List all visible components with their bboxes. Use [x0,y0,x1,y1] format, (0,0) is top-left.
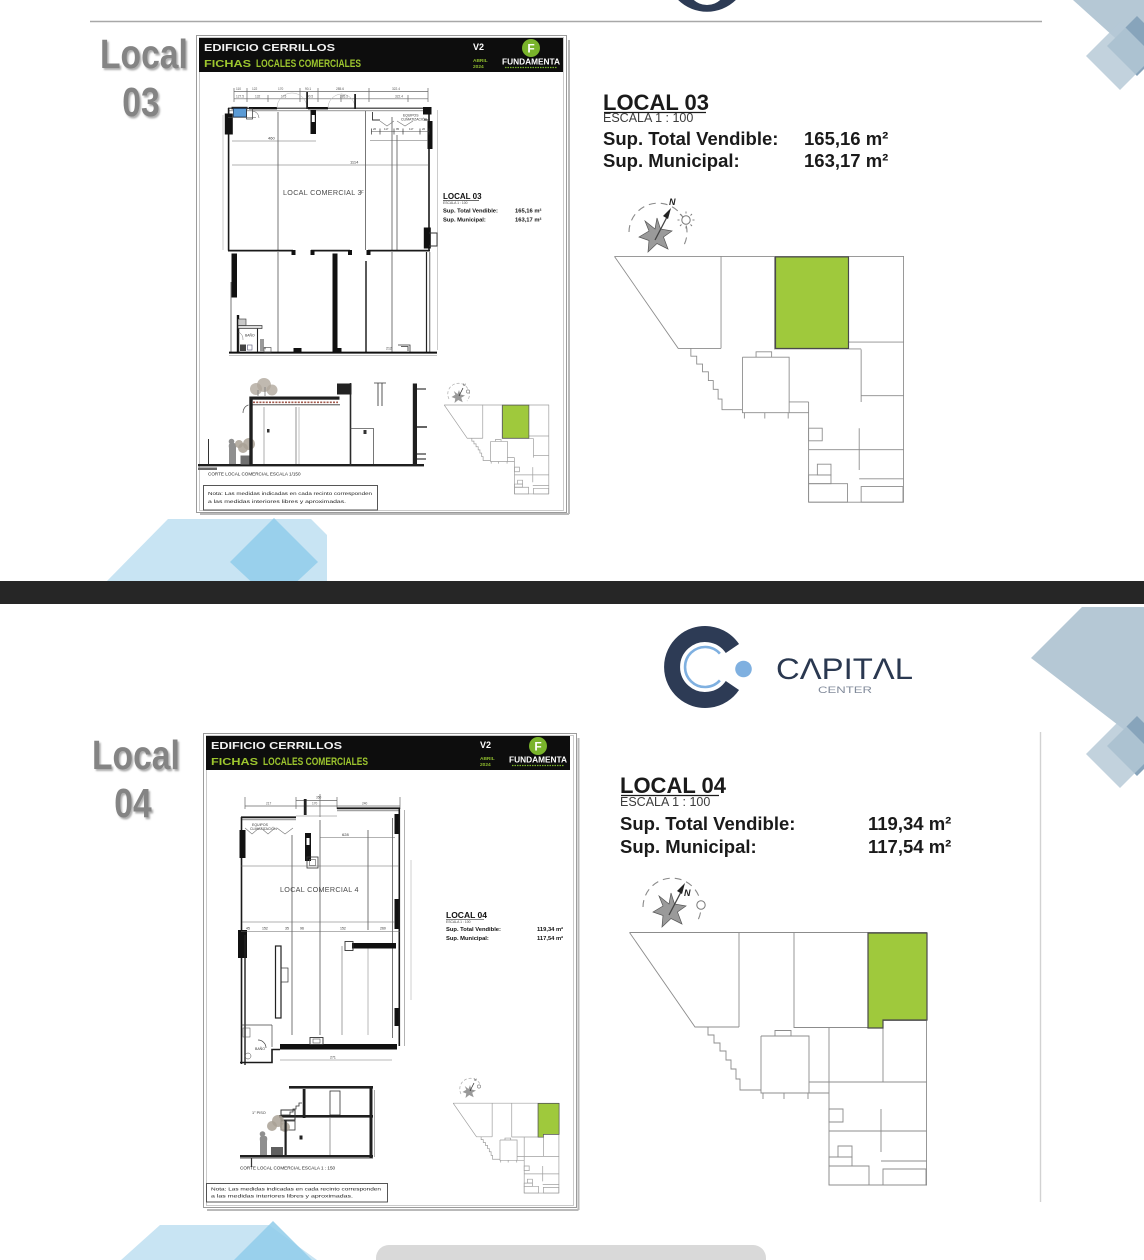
svg-text:165,16 m²: 165,16 m² [515,208,541,215]
svg-text:240: 240 [362,802,368,806]
svg-text:V2: V2 [480,740,491,750]
svg-text:Sup. Total Vendible:: Sup. Total Vendible: [620,813,795,834]
svg-text:35: 35 [285,927,289,931]
svg-text:LOCALES COMERCIALES: LOCALES COMERCIALES [256,58,361,70]
svg-text:ABRIL: ABRIL [480,756,495,762]
svg-text:322.4: 322.4 [392,87,400,91]
svg-text:163,17 m²: 163,17 m² [515,217,541,224]
svg-text:Sup. Municipal:: Sup. Municipal: [443,218,486,224]
svg-text:CENTER: CENTER [818,685,872,696]
svg-text:CORTE LOCAL COMERCIAL ESCALA 1: CORTE LOCAL COMERCIAL ESCALA 1/150 [208,472,301,477]
svg-text:90.1: 90.1 [305,87,311,91]
svg-text:152: 152 [340,927,346,931]
svg-text:LOCAL 04: LOCAL 04 [446,910,487,920]
svg-text:117,54 m²: 117,54 m² [868,836,951,857]
svg-text:FUNDAMENTA: FUNDAMENTA [502,58,560,67]
svg-text:122: 122 [252,87,258,91]
svg-text:CΛPITΛL: CΛPITΛL [776,653,913,686]
svg-text:170: 170 [278,87,284,91]
svg-text:271: 271 [330,1056,336,1060]
svg-text:a las medidas interiores libre: a las medidas interiores libres y aproxi… [208,499,346,505]
svg-text:170: 170 [312,802,318,806]
svg-text:ESCALA 1 : 100: ESCALA 1 : 100 [620,795,710,809]
svg-text:119,34 m²: 119,34 m² [537,926,563,933]
svg-text:152: 152 [262,927,268,931]
svg-text:96: 96 [300,927,304,931]
svg-text:V2: V2 [473,42,484,52]
svg-text:2024: 2024 [480,762,491,768]
svg-text:CORTE LOCAL COMERCIAL ESCALA 1: CORTE LOCAL COMERCIAL ESCALA 1 : 150 [240,1166,336,1171]
svg-text:2024: 2024 [473,64,484,70]
svg-text:BAÑO: BAÑO [255,1046,265,1051]
svg-text:127.5: 127.5 [236,95,244,99]
svg-text:ESCALA 1 : 100: ESCALA 1 : 100 [443,201,468,205]
svg-text:95: 95 [396,127,400,131]
svg-text:Nota: Las medidas indicadas en: Nota: Las medidas indicadas en cada reci… [211,1187,381,1193]
svg-text:322.4: 322.4 [395,95,403,99]
svg-text:ESCALA 1 : 100: ESCALA 1 : 100 [603,111,693,125]
svg-text:Sup. Total Vendible:: Sup. Total Vendible: [603,128,778,149]
svg-text:Sup. Total Vendible:: Sup. Total Vendible: [443,209,498,215]
svg-text:ABRIL: ABRIL [473,58,488,64]
svg-text:165,16 m²: 165,16 m² [804,128,888,149]
svg-text:260: 260 [380,927,386,931]
svg-text:EDIFICIO CERRILLOS: EDIFICIO CERRILLOS [204,43,335,54]
svg-text:a las medidas interiores libre: a las medidas interiores libres y aproxi… [211,1194,353,1200]
svg-text:Sup. Total Vendible:: Sup. Total Vendible: [446,927,501,933]
svg-text:FICHAS: FICHAS [204,59,251,70]
svg-text:175: 175 [281,95,287,99]
svg-text:1° PISO: 1° PISO [252,1111,266,1115]
svg-text:217: 217 [266,802,272,806]
svg-text:F: F [361,190,364,195]
svg-text:LOCAL COMERCIAL 4: LOCAL COMERCIAL 4 [280,885,359,894]
svg-text:Sup. Municipal:: Sup. Municipal: [620,836,757,857]
svg-text:163,17 m²: 163,17 m² [804,150,888,171]
svg-text:ESCALA 1 : 100: ESCALA 1 : 100 [446,920,471,924]
svg-text:LOCAL COMERCIAL 3: LOCAL COMERCIAL 3 [283,188,362,197]
svg-text:350: 350 [316,796,322,800]
svg-text:212: 212 [386,347,392,351]
svg-text:LOCALES COMERCIALES: LOCALES COMERCIALES [263,756,368,768]
svg-text:1114: 1114 [350,160,359,165]
svg-text:132: 132 [255,95,261,99]
svg-text:BAÑO: BAÑO [245,333,255,338]
svg-text:285.6: 285.6 [336,87,344,91]
svg-text:119,34 m²: 119,34 m² [868,813,951,834]
svg-text:Nota: Las medidas indicadas en: Nota: Las medidas indicadas en cada reci… [208,491,372,497]
svg-text:26: 26 [422,127,426,131]
svg-text:628: 628 [342,832,349,837]
svg-text:F: F [534,740,541,754]
svg-text:460: 460 [268,136,275,141]
svg-text:LOCAL 03: LOCAL 03 [443,192,482,201]
svg-text:N: N [669,197,676,207]
svg-text:F: F [527,42,534,56]
svg-text:45: 45 [246,927,250,931]
svg-text:N: N [684,888,691,898]
svg-text:26: 26 [373,127,377,131]
svg-text:Sup. Municipal:: Sup. Municipal: [446,936,489,942]
svg-text:EDIFICIO CERRILLOS: EDIFICIO CERRILLOS [211,741,342,752]
svg-text:117: 117 [384,127,389,131]
svg-text:FICHAS: FICHAS [211,757,258,768]
svg-text:CLIMATIZACIÓN: CLIMATIZACIÓN [401,117,427,122]
svg-text:110: 110 [236,87,241,91]
svg-text:Sup. Municipal:: Sup. Municipal: [603,150,740,171]
svg-text:117,54 m²: 117,54 m² [537,935,563,942]
svg-text:117: 117 [409,127,414,131]
svg-text:FUNDAMENTA: FUNDAMENTA [509,756,567,765]
